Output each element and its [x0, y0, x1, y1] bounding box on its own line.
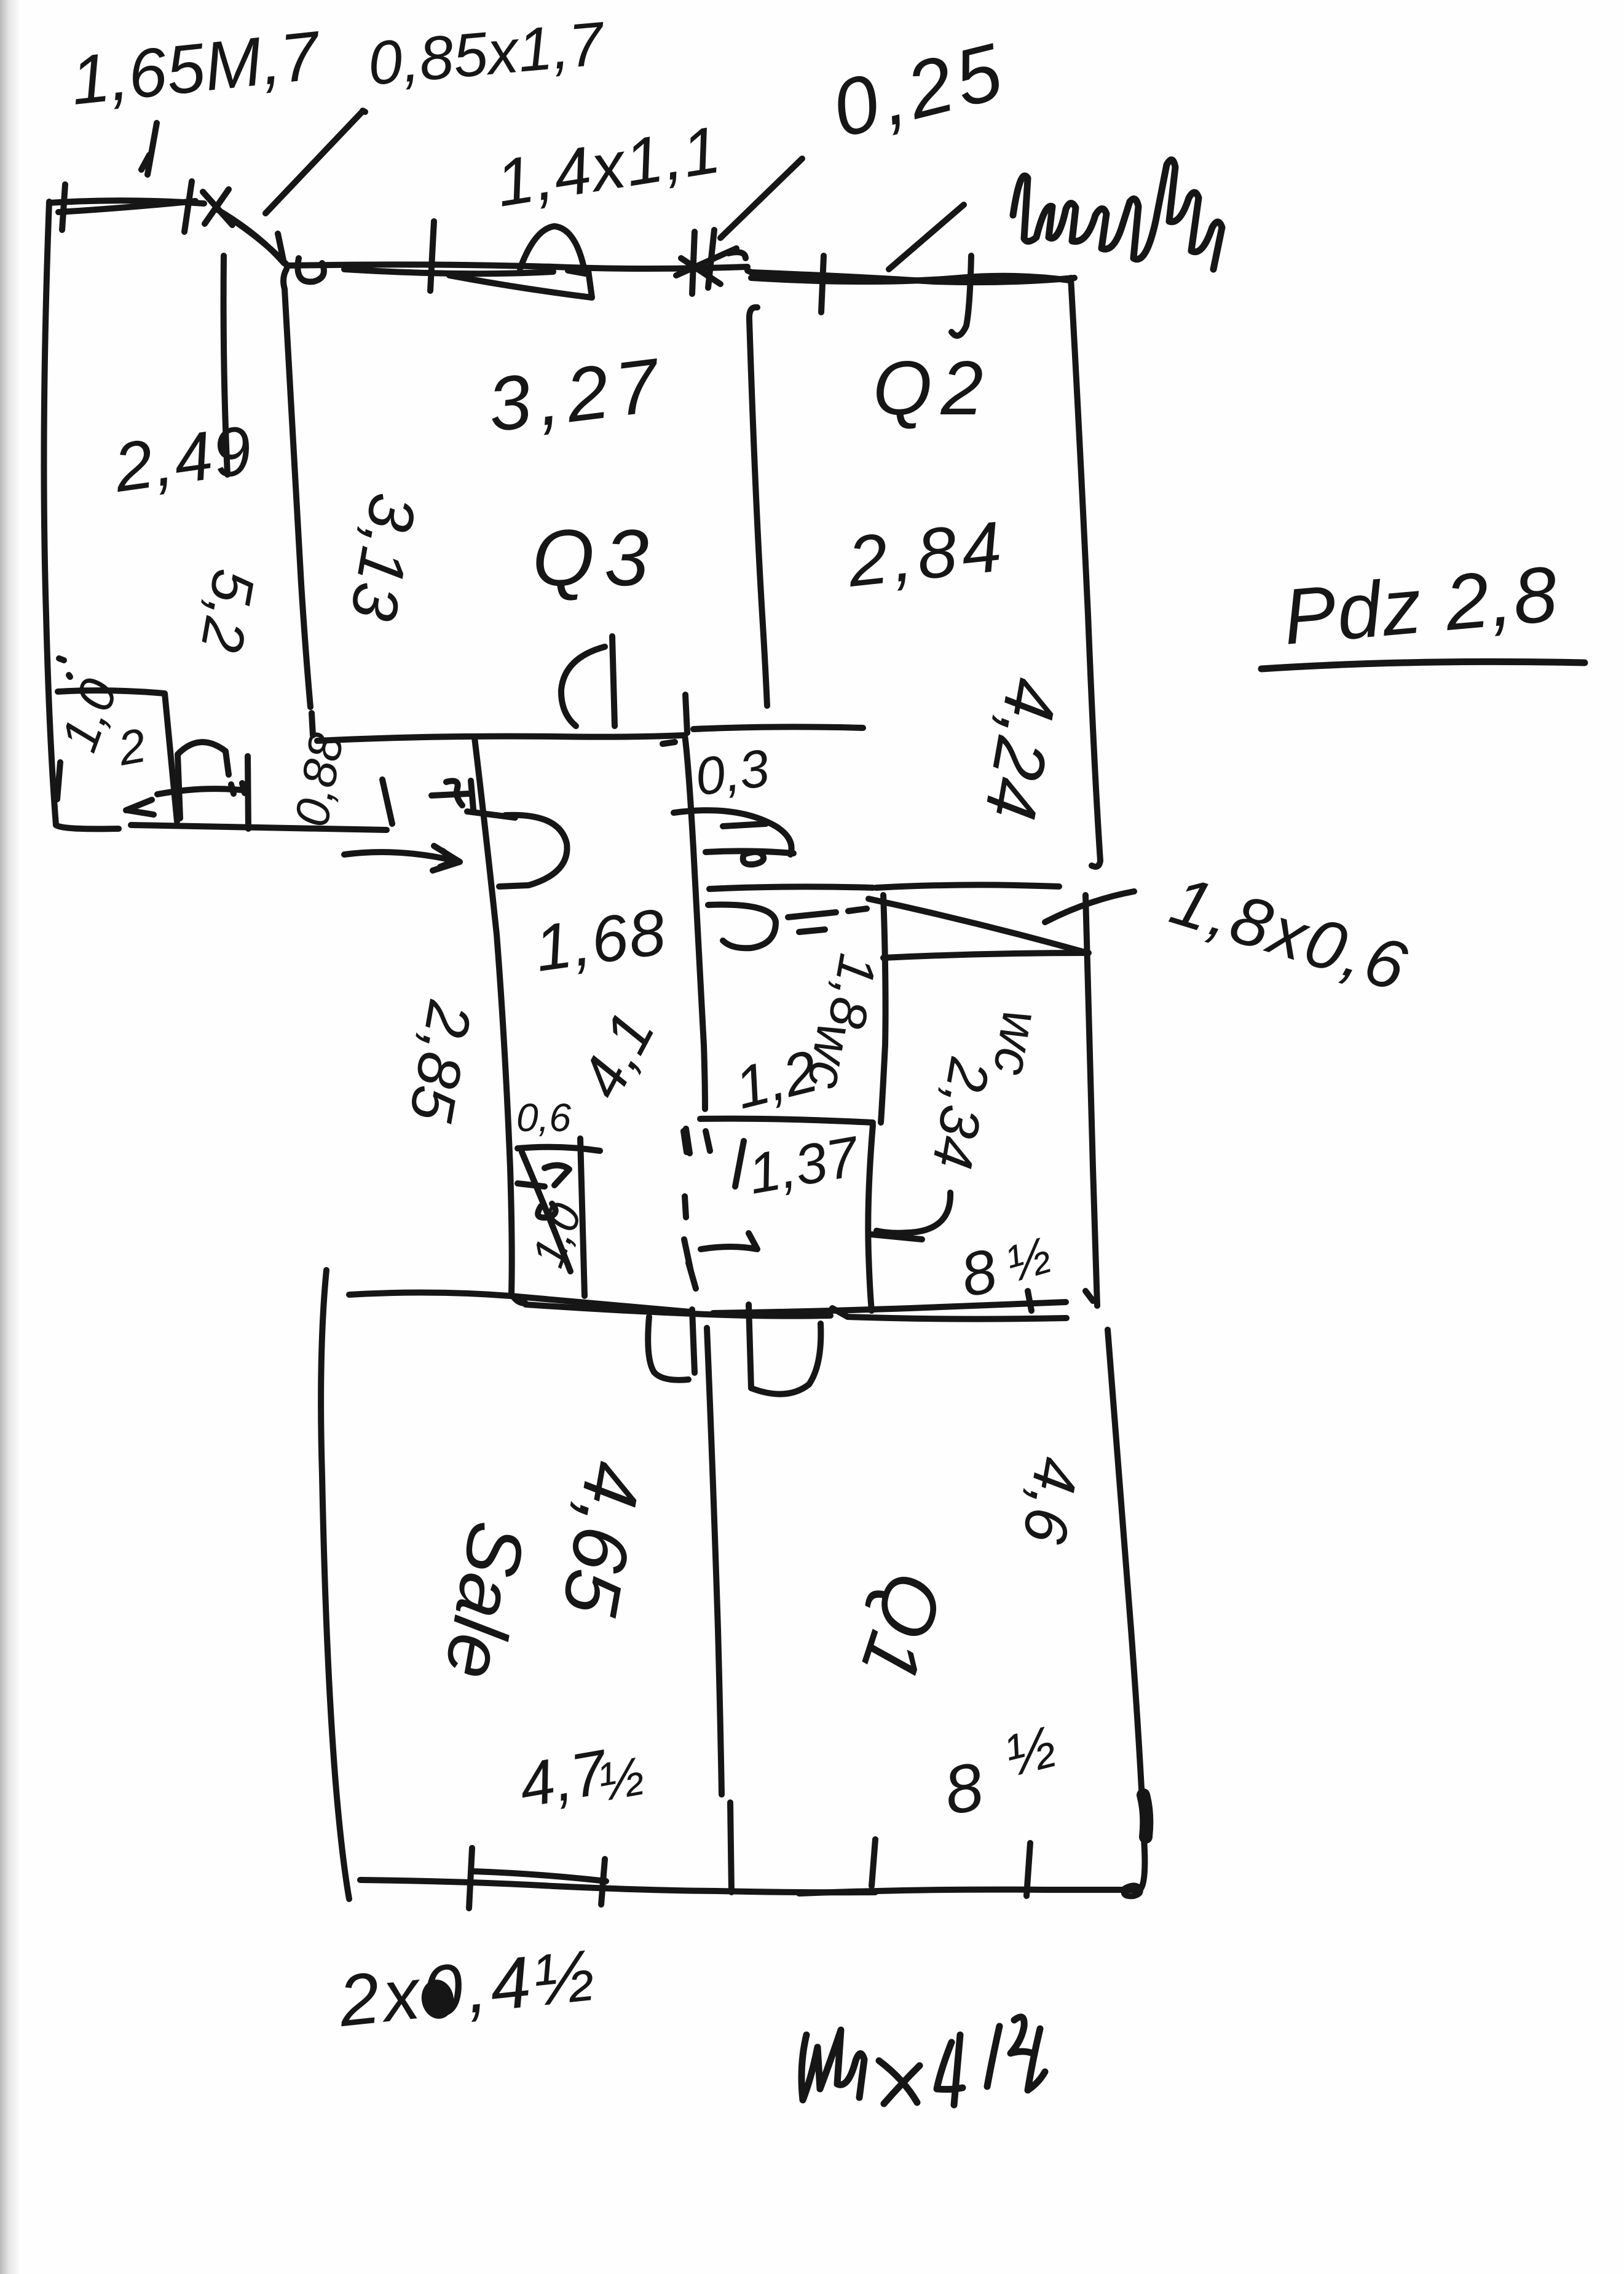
- svg-text:Q2: Q2: [873, 346, 991, 431]
- svg-text:Q3: Q3: [532, 513, 658, 602]
- svg-text:0,3: 0,3: [692, 738, 773, 807]
- svg-text:5,2: 5,2: [188, 564, 267, 657]
- svg-text:4,6: 4,6: [1009, 1452, 1092, 1549]
- svg-text:1,8: 1,8: [816, 950, 887, 1033]
- svg-text:2,84: 2,84: [843, 506, 1010, 602]
- svg-text:0,6: 0,6: [516, 1096, 571, 1140]
